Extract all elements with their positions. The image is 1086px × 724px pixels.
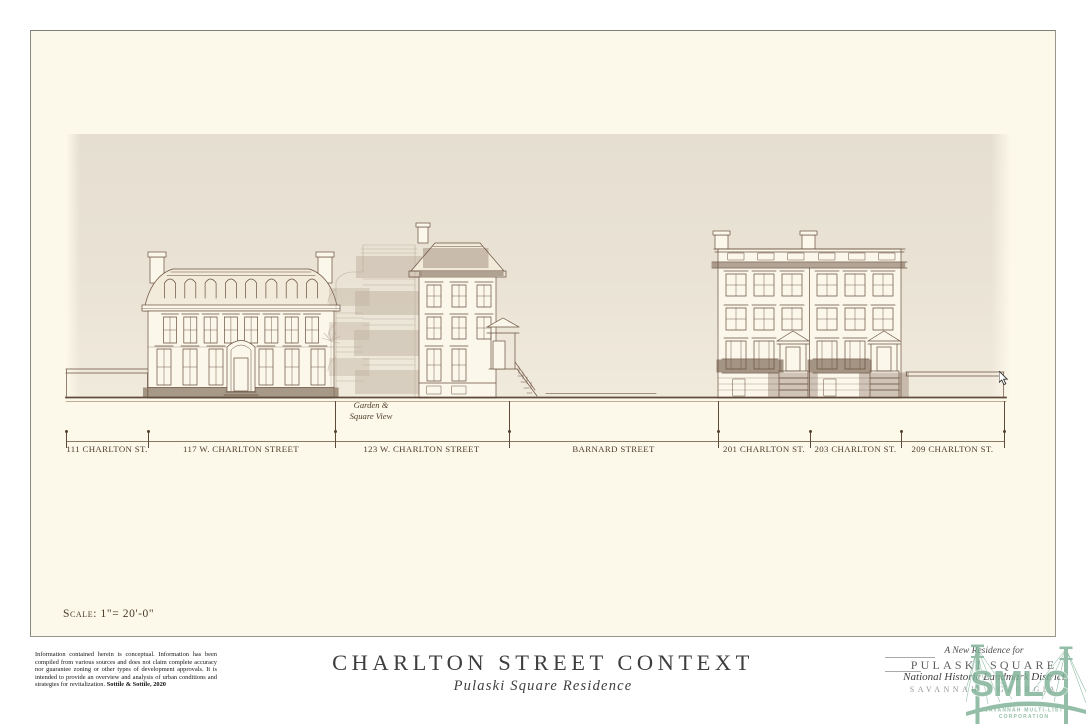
dimension-tick-dot [900, 430, 903, 433]
dimension-tick [1004, 401, 1005, 448]
page: Garden & Square View 111 CHARLTON ST. 11… [0, 0, 1086, 724]
segment-label-111: 111 CHARLTON ST. [37, 444, 177, 454]
smlc-watermark: SMLC SAVANNAH MULTI-LIST CORPORATION [966, 640, 1086, 724]
building-201-203-drawing [712, 231, 907, 398]
smlc-caption-line2: CORPORATION [999, 714, 1049, 720]
building-117-drawing [142, 252, 340, 398]
dimension-tick-dot [334, 430, 337, 433]
wall-209-drawing [906, 372, 1004, 398]
garden-note-line2: Square View [321, 411, 421, 422]
dimension-tick [718, 401, 719, 448]
mouse-cursor [999, 371, 1009, 386]
dimension-tick-dot [1003, 430, 1006, 433]
dimension-tick-dot [65, 430, 68, 433]
dimension-tick-dot [717, 430, 720, 433]
dimension-tick-dot [809, 430, 812, 433]
segment-label-209: 209 CHARLTON ST. [883, 444, 1023, 454]
segment-label-123: 123 W. CHARLTON STREET [352, 444, 492, 454]
ground-line [66, 398, 1006, 402]
dimension-tick [335, 401, 336, 448]
segment-label-barnard: BARNARD STREET [544, 444, 684, 454]
building-garden-ghost-drawing [322, 245, 417, 398]
dimension-line [66, 441, 1004, 442]
drawing-sheet: Garden & Square View 111 CHARLTON ST. 11… [30, 30, 1056, 637]
building-123-drawing [409, 223, 537, 398]
wall-111-drawing [66, 369, 148, 398]
scale-note: Scale: 1"= 20'-0" [63, 608, 154, 620]
smlc-caption-line1: SAVANNAH MULTI-LIST [984, 708, 1063, 714]
dimension-tick [509, 401, 510, 448]
garden-note-line1: Garden & [321, 400, 421, 411]
dimension-tick-dot [147, 430, 150, 433]
elevation-drawing [31, 31, 1057, 638]
smlc-acronym: SMLC [970, 663, 1069, 704]
segment-label-117: 117 W. CHARLTON STREET [171, 444, 311, 454]
dimension-tick-dot [508, 430, 511, 433]
garden-note: Garden & Square View [321, 400, 421, 421]
